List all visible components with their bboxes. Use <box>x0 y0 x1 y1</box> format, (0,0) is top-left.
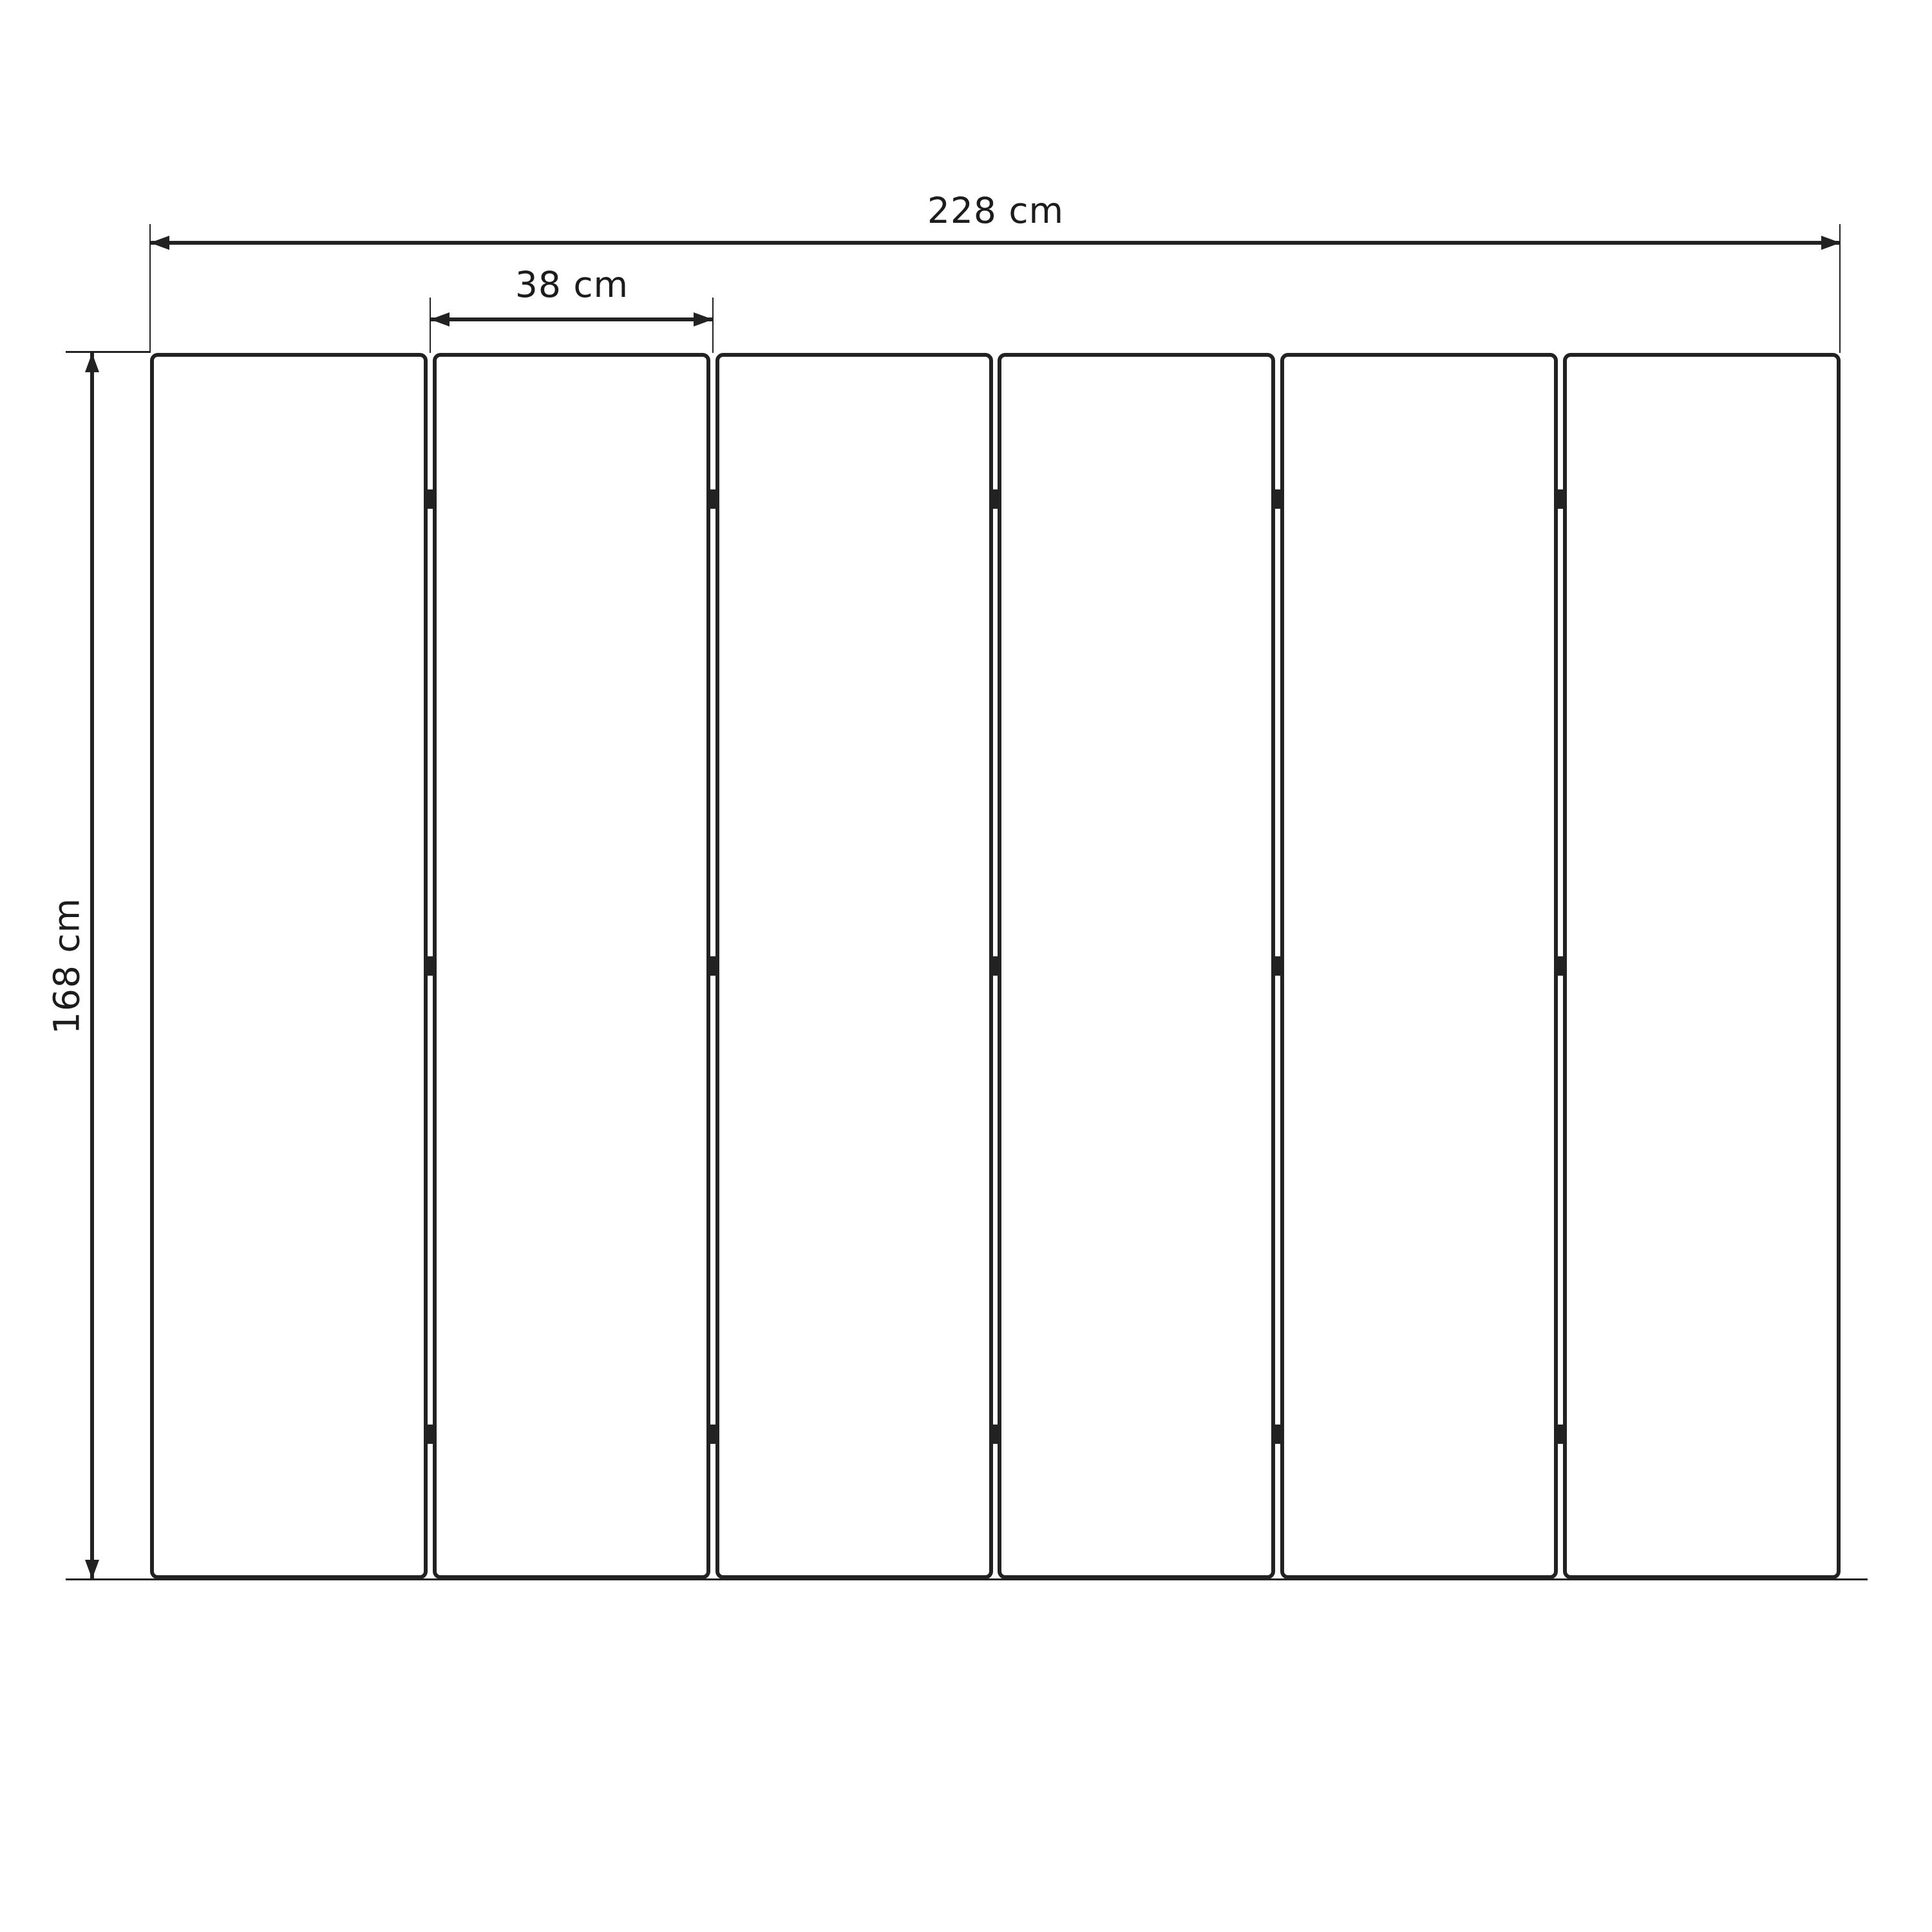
panel-3 <box>715 353 993 1579</box>
hinge-mark-gap1-row3 <box>426 1425 434 1444</box>
hinge-mark-gap4-row2 <box>1274 956 1282 976</box>
total-width-arrow-left-icon <box>150 236 169 250</box>
height-extension-line-top <box>66 351 150 353</box>
panel-width-dimension-line <box>430 317 713 321</box>
total-width-arrow-right-icon <box>1821 236 1841 250</box>
height-dimension-label: 168 cm <box>50 898 85 1034</box>
hinge-mark-gap2-row2 <box>708 956 717 976</box>
hinge-mark-gap3-row2 <box>991 956 999 976</box>
hinge-mark-gap2-row1 <box>708 489 717 509</box>
hinge-mark-gap2-row3 <box>708 1425 717 1444</box>
panel-2 <box>433 353 710 1579</box>
height-arrow-down-icon <box>85 1560 99 1579</box>
hinge-mark-gap5-row2 <box>1557 956 1565 976</box>
panel-1 <box>150 353 428 1579</box>
hinge-mark-gap3-row3 <box>991 1425 999 1444</box>
total-width-dimension-line <box>150 241 1841 245</box>
hinge-mark-gap1-row1 <box>426 489 434 509</box>
hinge-mark-gap1-row2 <box>426 956 434 976</box>
panel-6 <box>1563 353 1841 1579</box>
panel-width-arrow-right-icon <box>694 312 713 327</box>
panel-5 <box>1280 353 1558 1579</box>
total-width-dimension-label: 228 cm <box>927 193 1064 229</box>
panel-width-dimension-label: 38 cm <box>515 267 629 303</box>
hinge-mark-gap4-row1 <box>1274 489 1282 509</box>
panel-width-arrow-left-icon <box>430 312 450 327</box>
height-dimension-line <box>90 353 94 1579</box>
hinge-mark-gap5-row1 <box>1557 489 1565 509</box>
hinge-mark-gap3-row1 <box>991 489 999 509</box>
hinge-mark-gap5-row3 <box>1557 1425 1565 1444</box>
hinge-mark-gap4-row3 <box>1274 1425 1282 1444</box>
height-arrow-up-icon <box>85 353 99 372</box>
panel-dimension-diagram: 228 cm 38 cm 168 cm <box>0 0 1932 1932</box>
panel-4 <box>998 353 1275 1579</box>
